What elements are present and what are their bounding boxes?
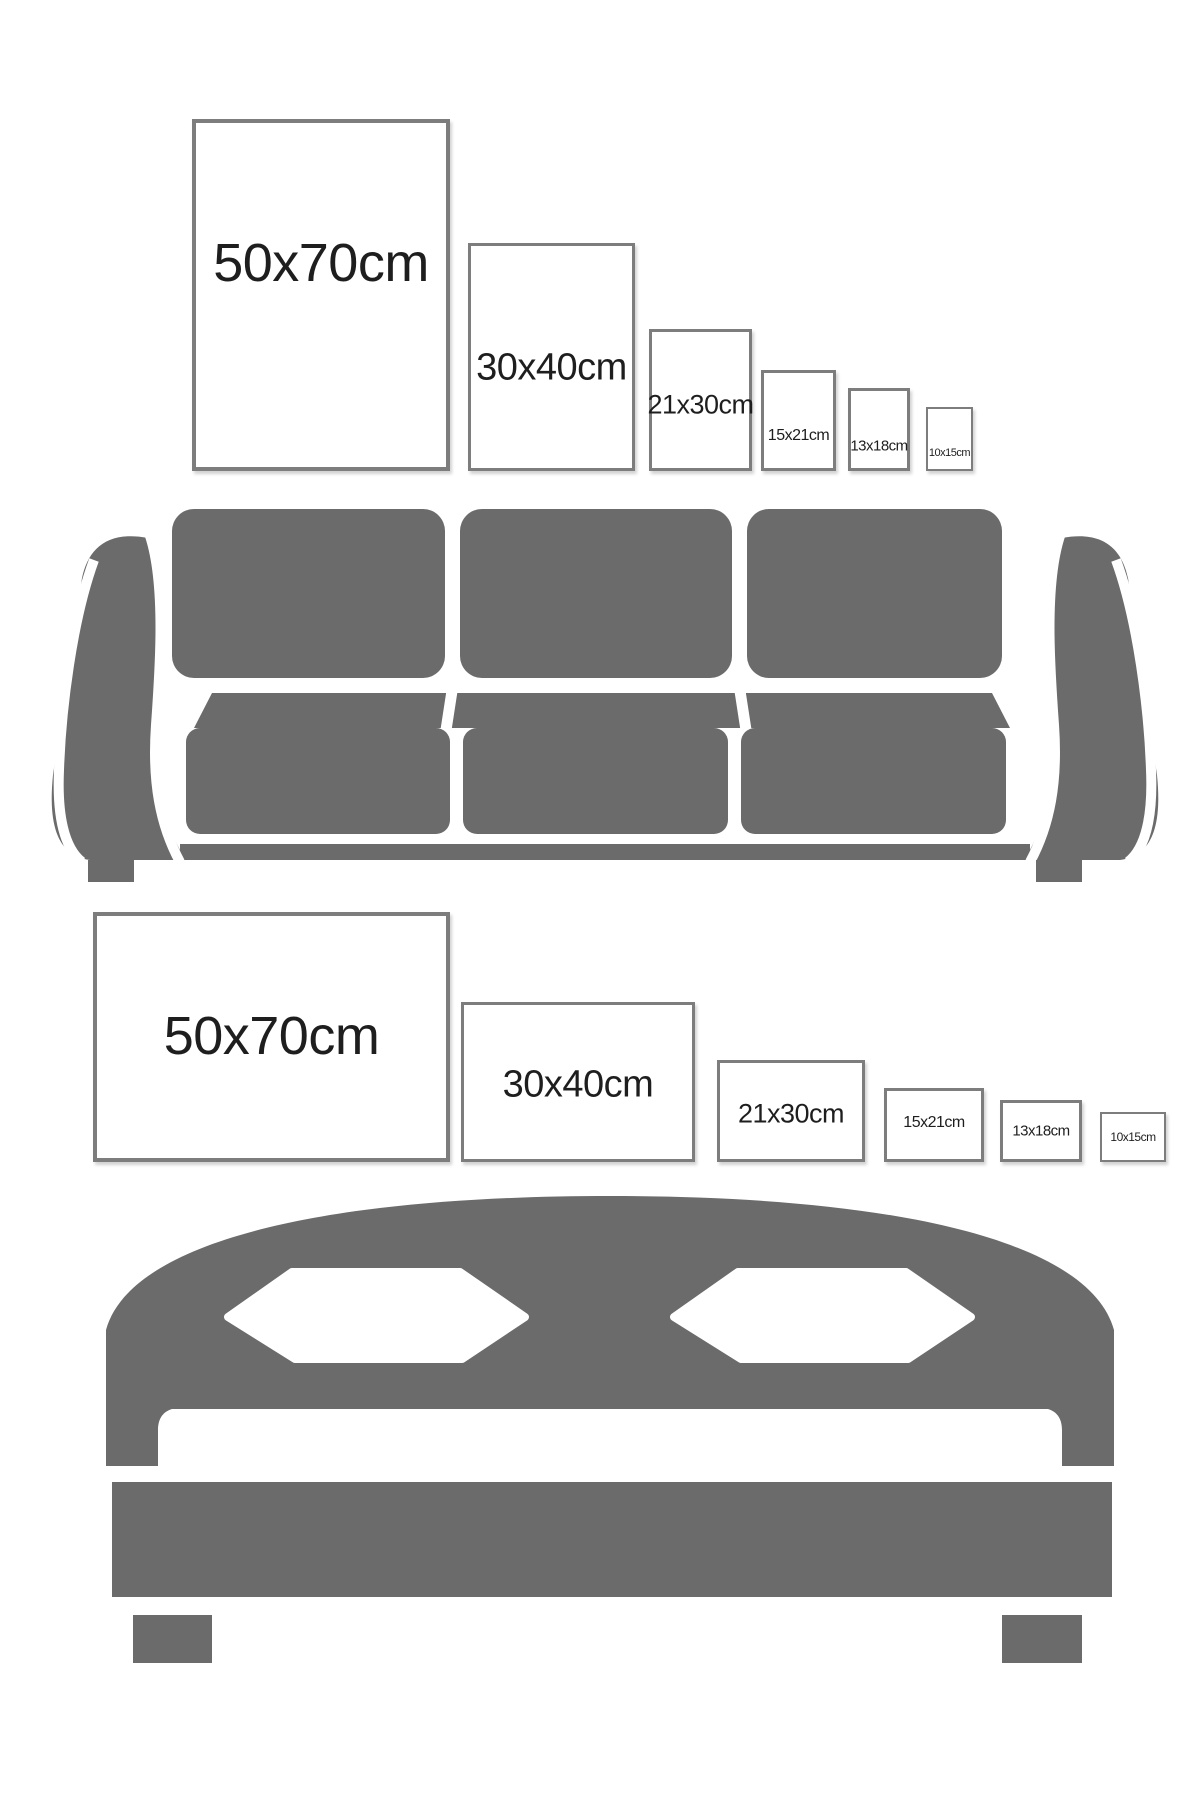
frame-size-label: 10x15cm: [1110, 1130, 1155, 1144]
frame-size-label: 30x40cm: [476, 347, 627, 390]
frame-size-label: 21x30cm: [647, 389, 753, 420]
sofa-icon: [0, 470, 1200, 882]
frame-size-label: 30x40cm: [503, 1064, 654, 1107]
bed-icon: [0, 1180, 1200, 1680]
size-guide-canvas: 50x70cm 30x40cm 21x30cm 15x21cm 13x18cm …: [0, 0, 1200, 1800]
frame-size-label: 13x18cm: [1012, 1123, 1069, 1140]
frame-landscape-10x15: 10x15cm: [1100, 1112, 1166, 1162]
frame-size-label: 13x18cm: [850, 438, 907, 455]
frame-landscape-13x18: 13x18cm: [1000, 1100, 1082, 1162]
frame-size-label: 10x15cm: [929, 447, 970, 459]
frame-portrait-15x21: 15x21cm: [761, 370, 836, 471]
frame-portrait-10x15: 10x15cm: [926, 407, 973, 471]
frame-landscape-15x21: 15x21cm: [884, 1088, 984, 1162]
frame-size-label: 15x21cm: [903, 1114, 964, 1132]
frame-size-label: 15x21cm: [768, 427, 829, 445]
frame-size-label: 21x30cm: [738, 1098, 844, 1129]
frame-size-label: 50x70cm: [164, 1005, 380, 1067]
frame-landscape-30x40: 30x40cm: [461, 1002, 695, 1162]
frame-portrait-13x18: 13x18cm: [848, 388, 910, 471]
frame-landscape-50x70: 50x70cm: [93, 912, 450, 1162]
frame-portrait-21x30: 21x30cm: [649, 329, 752, 471]
frame-size-label: 50x70cm: [213, 232, 429, 294]
frame-portrait-50x70: 50x70cm: [192, 119, 450, 471]
frame-portrait-30x40: 30x40cm: [468, 243, 635, 471]
frame-landscape-21x30: 21x30cm: [717, 1060, 865, 1162]
